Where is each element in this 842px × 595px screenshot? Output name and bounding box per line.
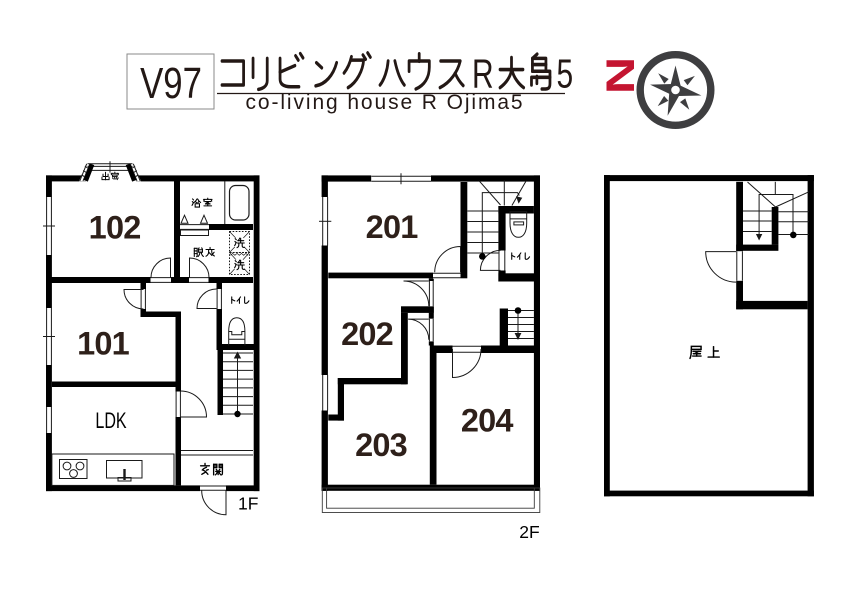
svg-text:202: 202 [341, 316, 393, 352]
svg-text:1F: 1F [238, 494, 258, 514]
svg-text:R: R [472, 51, 494, 97]
svg-text:V97: V97 [140, 59, 202, 108]
svg-text:2F: 2F [519, 522, 539, 542]
svg-text:204: 204 [461, 403, 514, 439]
svg-text:203: 203 [355, 427, 407, 463]
svg-text:LDK: LDK [95, 410, 126, 434]
svg-text:co-living house R Ojima5: co-living house R Ojima5 [245, 91, 524, 114]
svg-text:5: 5 [557, 51, 574, 97]
svg-text:102: 102 [89, 210, 141, 246]
svg-text:201: 201 [366, 209, 419, 245]
svg-text:N: N [598, 57, 643, 95]
svg-text:101: 101 [77, 326, 130, 362]
